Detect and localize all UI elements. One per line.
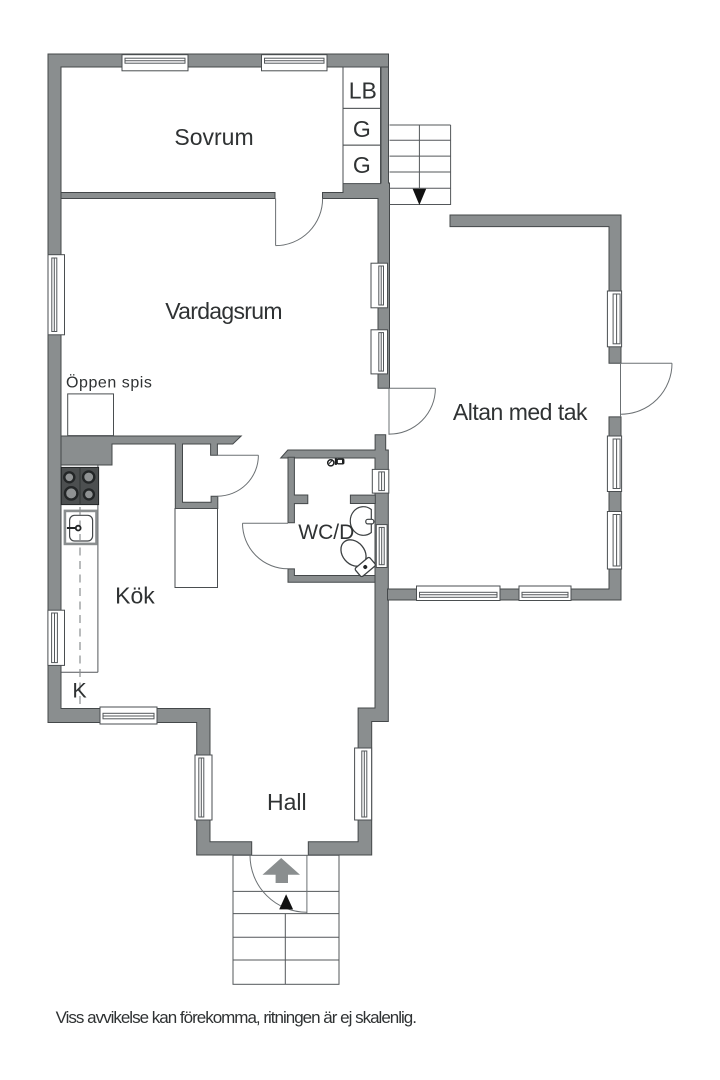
svg-text:WC/D: WC/D xyxy=(298,521,354,544)
svg-text:Hall: Hall xyxy=(267,789,307,815)
svg-text:K: K xyxy=(72,678,87,702)
svg-text:Sovrum: Sovrum xyxy=(174,124,253,150)
svg-text:LB: LB xyxy=(349,78,377,104)
svg-text:G: G xyxy=(353,152,371,178)
svg-text:Viss avvikelse kan förekomma,: Viss avvikelse kan förekomma, ritningen … xyxy=(56,1008,417,1027)
svg-text:Vardagsrum: Vardagsrum xyxy=(165,298,282,324)
svg-text:Kök: Kök xyxy=(115,583,155,609)
svg-text:Öppen spis: Öppen spis xyxy=(66,373,152,391)
svg-text:G: G xyxy=(353,116,371,142)
svg-text:Altan med tak: Altan med tak xyxy=(453,399,588,425)
